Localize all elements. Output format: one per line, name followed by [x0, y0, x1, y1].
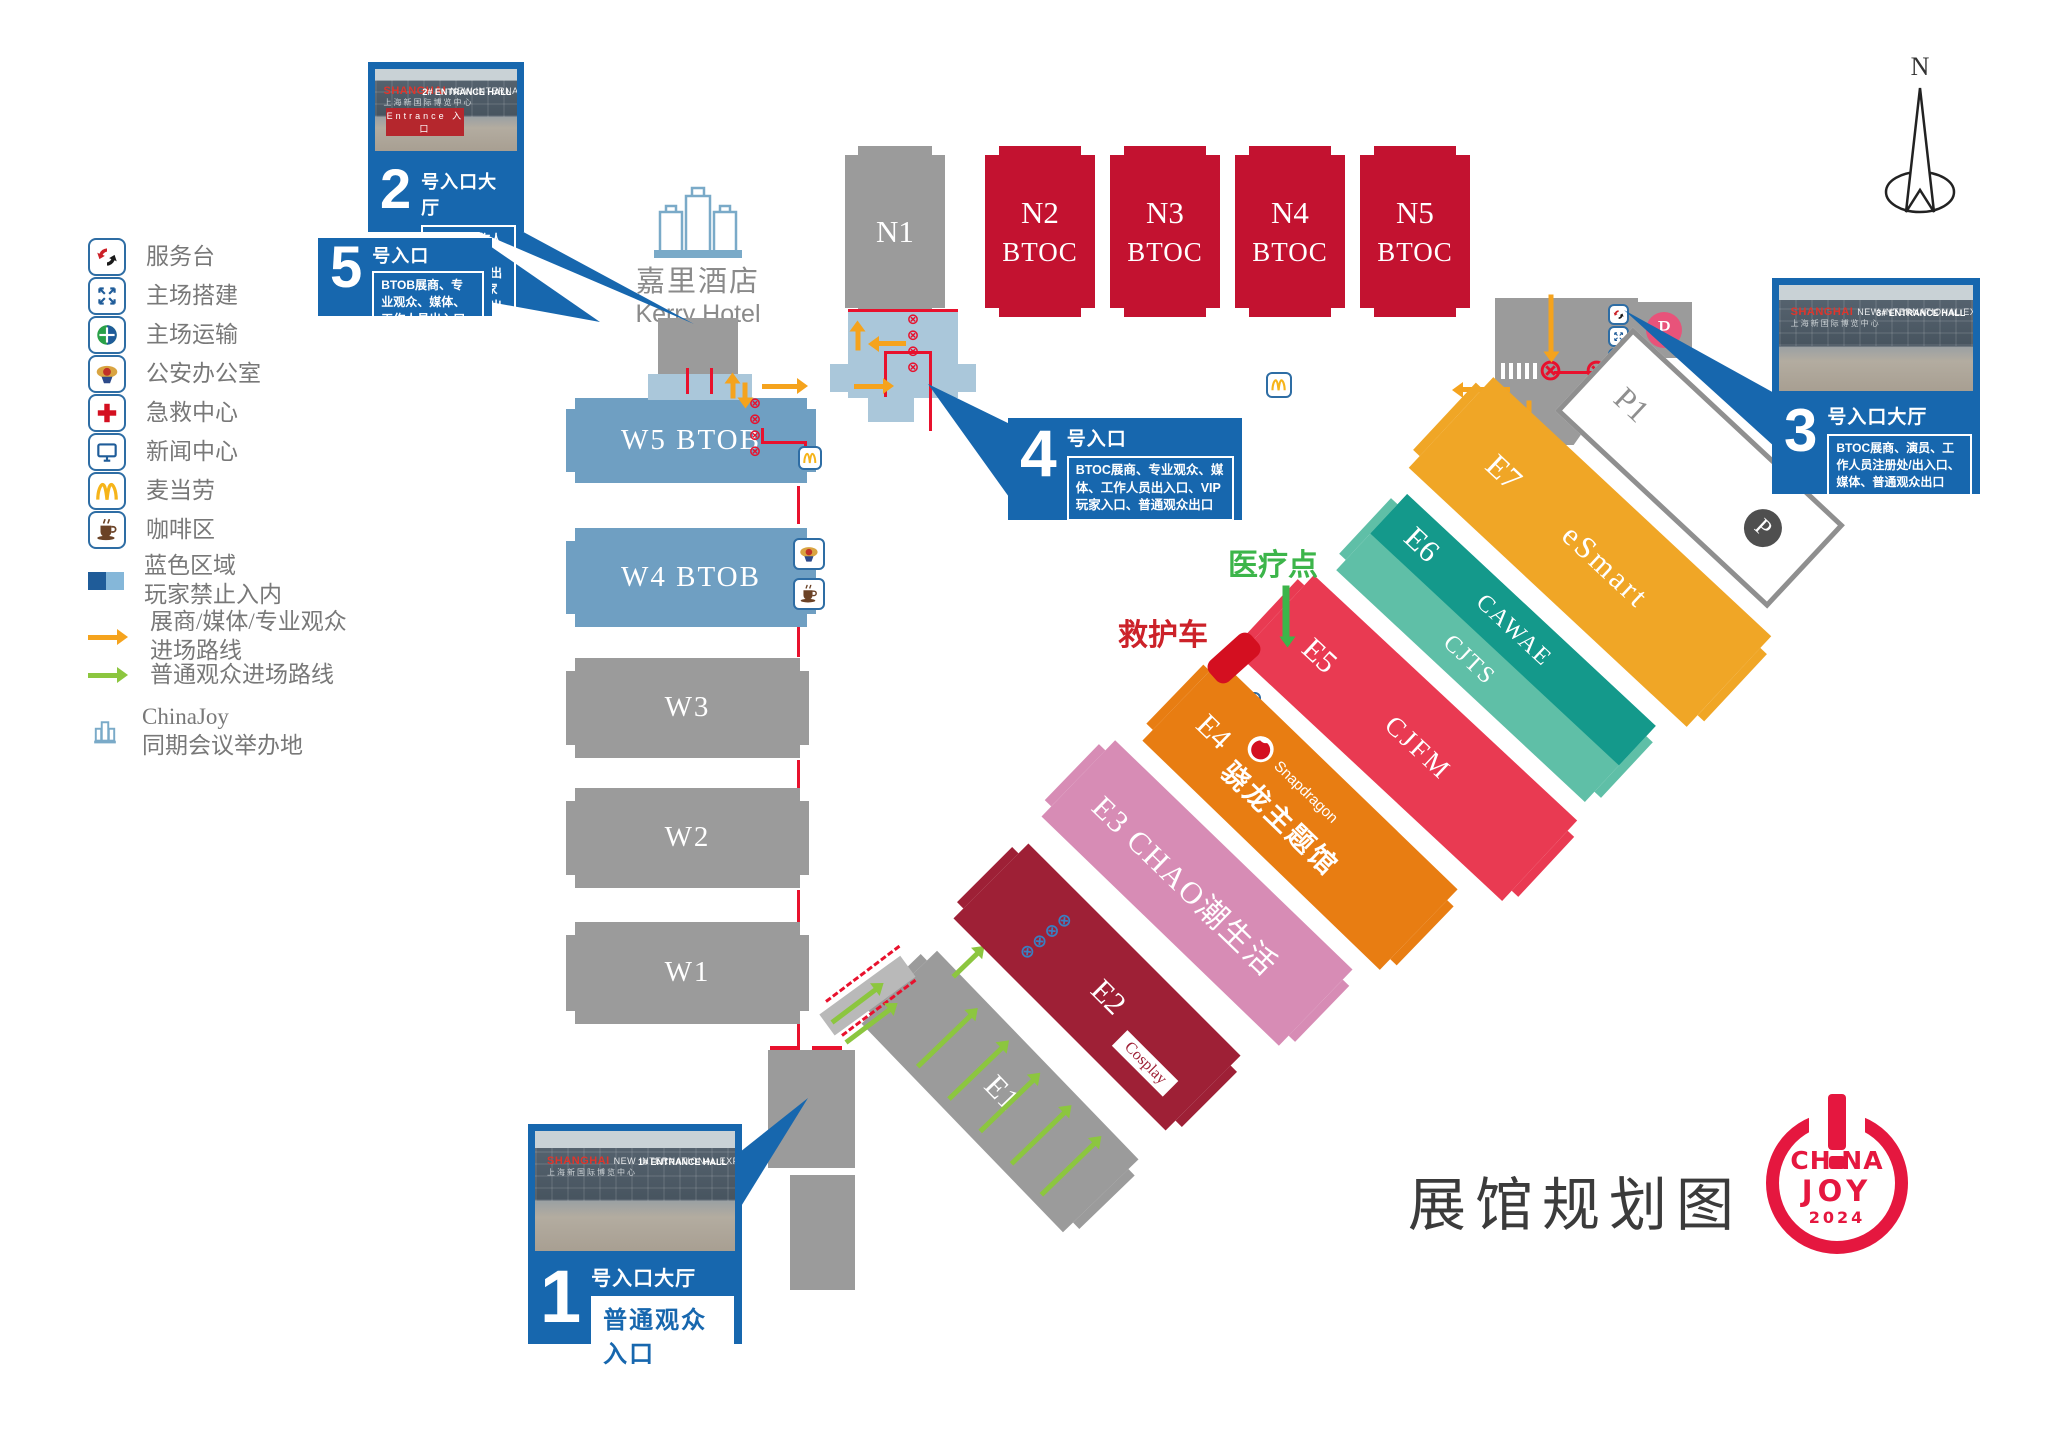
map-title: 展馆规划图 [1408, 1158, 1743, 1242]
compass-arrow-icon [1880, 82, 1960, 242]
chinajoy-2024-logo: CHiNA JOY 2024 [1762, 1108, 1912, 1258]
entrance-description: BTOC展商、演员、工作人员注册处/出入口、媒体、普通观众出口 [1827, 434, 1972, 496]
entrance-number: 1 [540, 1262, 581, 1332]
entrance-title: 号入口大厅 [421, 168, 516, 220]
entrance-number: 4 [1020, 422, 1057, 485]
entrance1-photo: SHANGHAINEW INTERNATIONAL EXPO CENTRE上海新… [535, 1131, 735, 1251]
compass-north-label: N [1880, 52, 1960, 82]
entrance-description: BTOB展商、专业观众、媒体、工作人员出入口 [372, 271, 484, 333]
entrance-number: 5 [330, 240, 362, 295]
entrance4-callout: 4 号入口 BTOC展商、专业观众、媒体、工作人员出入口、VIP玩家入口、普通观… [1008, 418, 1242, 520]
entrance2-photo: SHANGHAINEW INTERNATIONAL EXPO CENTRE上海新… [375, 69, 517, 151]
entrance-description: 普通观众入口 [591, 1296, 734, 1379]
entrance-title: 号入口大厅 [1827, 402, 1972, 429]
entrance2-callout: SHANGHAINEW INTERNATIONAL EXPO CENTRE上海新… [368, 62, 524, 232]
entrance-number: 2 [380, 162, 411, 215]
entrance3-callout: SHANGHAINEW INTERNATIONAL EXPO CENTRE上海新… [1772, 278, 1980, 494]
compass: N [1880, 52, 1960, 242]
entrance-title: 号入口大厅 [591, 1262, 734, 1291]
entrance3-photo: SHANGHAINEW INTERNATIONAL EXPO CENTRE上海新… [1779, 285, 1973, 391]
venue-map-poster: 服务台 主场搭建 主场运输 公安办公室 急救中心 新闻中心 麦当劳 咖啡区 蓝色… [0, 0, 2048, 1448]
entrance-title: 号入口 [1067, 424, 1234, 451]
entrance5-callout: 5 号入口 BTOB展商、专业观众、媒体、工作人员出入口 [318, 238, 492, 316]
entrance-number: 3 [1784, 402, 1817, 459]
entrance1-callout: SHANGHAINEW INTERNATIONAL EXPO CENTRE上海新… [528, 1124, 742, 1344]
entrance-description: BTOC展商、专业观众、媒体、工作人员出入口、VIP玩家入口、普通观众出口 [1067, 456, 1234, 521]
entrance-title: 号入口 [372, 242, 484, 268]
